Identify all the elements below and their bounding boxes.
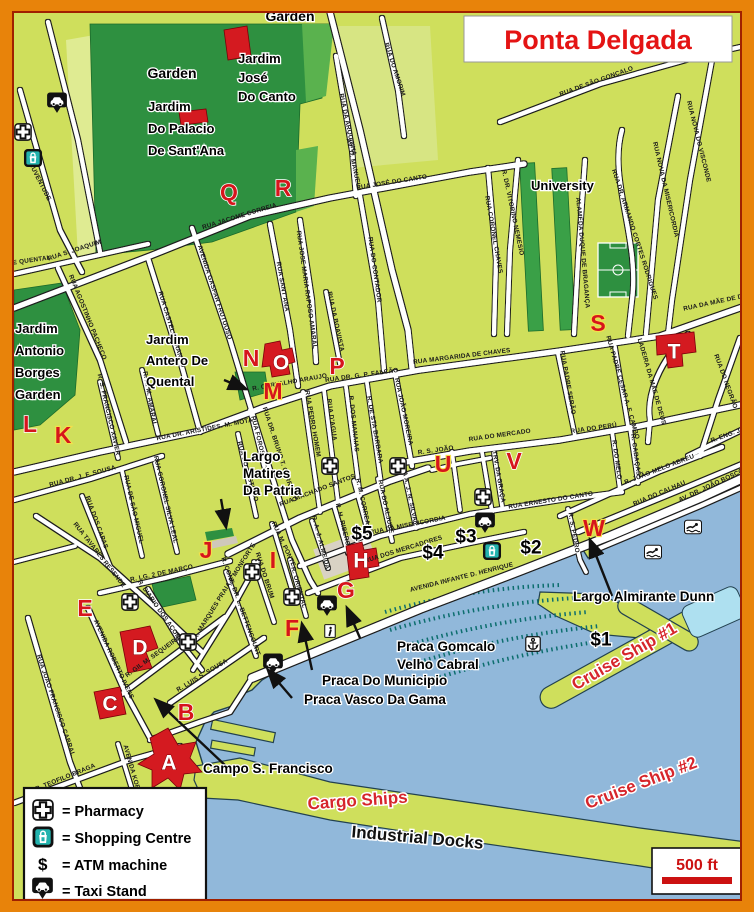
- marker-T: T: [668, 341, 681, 364]
- marker-P: P: [329, 353, 344, 379]
- marker-R: R: [275, 175, 292, 201]
- pharmacy-icon: [475, 489, 491, 505]
- park-label: Antero De: [146, 353, 208, 368]
- legend-item-shopping: = Shopping Centre: [62, 831, 191, 847]
- shopping-icon: [483, 542, 501, 560]
- atm-marker: $2: [520, 538, 541, 559]
- place-label: Campo S. Francisco: [203, 761, 333, 776]
- place-label: Matires: [243, 466, 290, 481]
- park-label: Do Palacio: [148, 121, 215, 136]
- marker-U: U: [435, 451, 452, 477]
- park-label: Jardim: [146, 332, 189, 347]
- marker-K: K: [55, 422, 72, 448]
- scale-bar: 500 ft: [652, 848, 742, 894]
- city-map: AV. D. MANUEL IDA JUVENTUDEE QUENTALRUA …: [0, 0, 754, 912]
- marker-O: O: [273, 352, 289, 375]
- info-icon: [325, 625, 336, 638]
- marker-Q: Q: [220, 179, 238, 205]
- park-label: De Sant'Ana: [148, 143, 225, 158]
- place-label: Praca Do Municipio: [322, 673, 447, 688]
- place-label: Da Patria: [243, 483, 302, 498]
- pharmacy-icon: [284, 589, 300, 605]
- legend-item-taxi: = Taxi Stand: [62, 884, 147, 900]
- marker-M: M: [263, 378, 282, 404]
- legend: $ = Pharmacy = Shopping Centre = ATM mac…: [24, 788, 206, 900]
- pharmacy-icon: [390, 458, 406, 474]
- marker-B: B: [178, 699, 195, 725]
- shopping-centre-icon: [33, 827, 54, 848]
- anchor-icon: [526, 637, 540, 651]
- scale-rule: [662, 877, 732, 884]
- marker-F: F: [285, 615, 299, 641]
- swim-icon: [644, 545, 661, 559]
- marker-W: W: [583, 515, 605, 541]
- map-frame: AV. D. MANUEL IDA JUVENTUDEE QUENTALRUA …: [0, 0, 754, 912]
- marker-H: H: [353, 550, 368, 573]
- scale-label: 500 ft: [676, 857, 718, 874]
- atm-marker: $4: [422, 543, 444, 564]
- pharmacy-icon: [122, 594, 138, 610]
- map-title: Ponta Delgada: [464, 16, 732, 62]
- atm-marker: $3: [455, 527, 476, 548]
- marker-D: D: [132, 637, 147, 660]
- park-label: Garden: [15, 387, 61, 402]
- shopping-icon: [24, 149, 42, 167]
- swim-icon: [684, 520, 701, 534]
- park-label: José: [238, 70, 268, 85]
- marker-V: V: [506, 448, 522, 474]
- place-label: Velho Cabral: [397, 657, 479, 672]
- marker-L: L: [23, 411, 37, 437]
- place-label: Praca Gomcalo: [397, 639, 495, 654]
- place-label: Largo Almirante Dunn: [573, 589, 714, 604]
- university-label: University: [531, 178, 595, 193]
- park-label: Antonio: [15, 343, 64, 358]
- park-label: Jardim: [148, 99, 191, 114]
- marker-E: E: [77, 595, 92, 621]
- park-label: Borges: [15, 365, 60, 380]
- pharmacy-icon: [33, 800, 53, 820]
- pharmacy-icon: [180, 634, 196, 650]
- marker-C: C: [102, 693, 117, 716]
- legend-item-pharmacy: = Pharmacy: [62, 804, 144, 820]
- atm-marker: $5: [351, 524, 373, 545]
- marker-A: A: [161, 752, 176, 775]
- atm-dollar-icon: $: [38, 855, 48, 874]
- park-label: Garden: [147, 65, 196, 81]
- pharmacy-icon: [322, 458, 338, 474]
- marker-I: I: [270, 547, 276, 573]
- park-label: Jardim: [15, 321, 58, 336]
- atm-marker: $1: [590, 630, 612, 651]
- marker-J: J: [200, 537, 213, 563]
- place-label: Largo: [243, 449, 281, 464]
- pharmacy-icon: [15, 124, 31, 140]
- park-label: Jardim: [238, 51, 281, 66]
- page-title: Ponta Delgada: [504, 25, 693, 55]
- legend-item-atm: = ATM machine: [62, 858, 167, 874]
- marker-G: G: [337, 577, 355, 603]
- place-label: Praca Vasco Da Gama: [304, 692, 446, 707]
- marker-S: S: [590, 310, 605, 336]
- park-label: Quental: [146, 374, 194, 389]
- pharmacy-icon: [244, 564, 260, 580]
- marker-N: N: [243, 345, 260, 371]
- park-label: Do Canto: [238, 89, 296, 104]
